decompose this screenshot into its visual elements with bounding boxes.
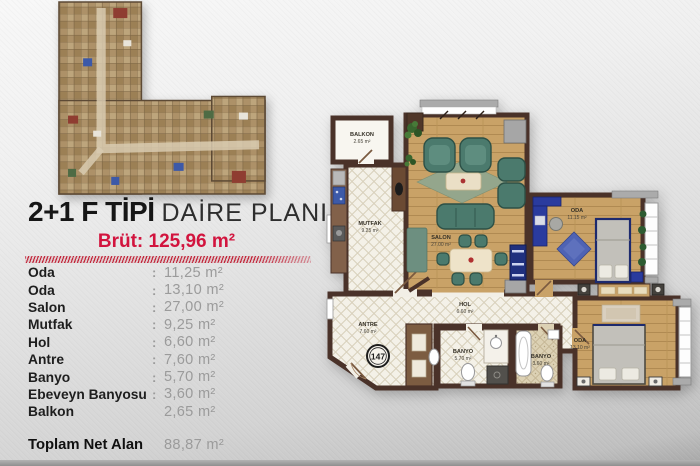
- room-label: Oda: [28, 265, 152, 280]
- room-area-value: 13,10 m²: [164, 282, 318, 298]
- colon: :: [152, 335, 164, 350]
- total-row: Toplam Net Alan 88,87 m²: [28, 437, 318, 453]
- area-row: Antre:7,60 m²: [28, 351, 318, 368]
- room-label: Mutfak: [28, 317, 152, 332]
- area-row: Salon:27,00 m²: [28, 299, 318, 316]
- toilet: [541, 365, 553, 381]
- colon: :: [152, 317, 164, 332]
- colon: :: [152, 265, 164, 280]
- room-area-value: 6,60 m²: [164, 334, 318, 350]
- desk: [533, 197, 561, 206]
- stove: [333, 187, 345, 204]
- room-area-value: 2,65 m²: [164, 404, 318, 420]
- area-row: Mutfak:9,25 m²: [28, 316, 318, 333]
- room-label: Antre: [28, 352, 152, 367]
- colon: :: [152, 387, 164, 402]
- bottom-shadow-strip: [0, 460, 700, 466]
- colon: :: [152, 352, 164, 367]
- salon-label: SALON: [431, 235, 451, 241]
- room-area-value: 5,70 m²: [164, 369, 318, 385]
- room-label: Banyo: [28, 370, 152, 385]
- balkon-area: 2.65 m²: [354, 139, 371, 145]
- room-area-value: 7,60 m²: [164, 352, 318, 368]
- colon: :: [152, 283, 164, 298]
- nightstand: [631, 272, 643, 282]
- hol-area: 6.60 m²: [457, 309, 474, 315]
- runner-rug: [407, 228, 427, 272]
- page-title: 2+1 F TİPİDAİRE PLANI: [28, 196, 328, 228]
- building-overview-image: [52, 0, 270, 197]
- room-area-value: 9,25 m²: [164, 317, 318, 333]
- room-label: Oda: [28, 283, 152, 298]
- room-area-value: 11,25 m²: [164, 265, 318, 281]
- area-row: Oda:11,25 m²: [28, 264, 318, 281]
- bay-window-oda-1: [645, 203, 658, 275]
- concrete-column: [504, 120, 526, 143]
- room-label: Salon: [28, 300, 152, 315]
- banyo-area: 5.70 m²: [455, 356, 472, 362]
- room-label: Hol: [28, 335, 152, 350]
- banyo-label: BANYO: [453, 349, 474, 355]
- area-row: Balkon2,65 m²: [28, 403, 318, 420]
- building-l-shape: [59, 2, 265, 194]
- french-balcony-rail: [420, 100, 498, 107]
- sofa: [498, 183, 525, 208]
- oda-2-area: 13.10 m²: [570, 345, 590, 351]
- balkon-label: BALKON: [350, 132, 374, 138]
- dresser-unit: [578, 284, 664, 297]
- area-row: Banyo:5,70 m²: [28, 368, 318, 385]
- oda-1-area: 11.15 m²: [567, 215, 587, 221]
- total-label: Toplam Net Alan: [28, 437, 164, 453]
- area-row: Oda:13,10 m²: [28, 281, 318, 298]
- washbasin: [548, 330, 559, 339]
- antre-label: ANTRE: [358, 322, 378, 328]
- room-area-value: 3,60 m²: [164, 386, 318, 402]
- red-hatch-divider: [25, 256, 311, 263]
- unit-number: 147: [371, 352, 385, 362]
- room-area-value: 27,00 m²: [164, 299, 318, 315]
- plan-type-title: 2+1 F TİPİ: [28, 196, 155, 227]
- area-row: Hol:6,60 m²: [28, 334, 318, 351]
- room-label: Balkon: [28, 404, 152, 419]
- plan-title-suffix: DAİRE PLANI: [162, 199, 329, 227]
- room-label: Ebeveyn Banyosu: [28, 387, 152, 402]
- oda-2-label: ODA: [574, 338, 586, 344]
- bay-window-oda-2: [679, 307, 691, 377]
- sofa: [498, 158, 525, 181]
- ebeveyn-banyo-area: 3.60 m²: [533, 361, 550, 367]
- colon: :: [152, 300, 164, 315]
- area-row: Ebeveyn Banyosu:3,60 m²: [28, 386, 318, 403]
- ebeveyn-banyo-label: BANYO: [531, 354, 552, 360]
- shower: [487, 366, 508, 384]
- fridge: [333, 171, 345, 185]
- washbasin: [429, 349, 439, 365]
- gross-area-text: Brüt: 125,96 m²: [0, 231, 333, 253]
- oda-1-label: ODA: [571, 208, 583, 214]
- floor-plan: 147 BALKON 2.65 m² MUTFAK 9.25 m² SAL: [325, 85, 700, 466]
- area-table: Oda:11,25 m² Oda:13,10 m² Salon:27,00 m²…: [28, 264, 318, 421]
- toilet: [462, 364, 475, 381]
- colon: :: [152, 370, 164, 385]
- desk-chair: [550, 218, 563, 231]
- mutfak-label: MUTFAK: [358, 221, 381, 227]
- hol-label: HOL: [459, 302, 471, 308]
- mutfak-area: 9.25 m²: [362, 228, 379, 234]
- antre-area: 7.60 m²: [360, 329, 377, 335]
- flyer-canvas: 2+1 F TİPİDAİRE PLANI Brüt: 125,96 m² Od…: [0, 0, 700, 466]
- total-value: 88,87 m²: [164, 437, 318, 453]
- salon-area: 27.00 m²: [431, 242, 451, 248]
- three-seat-sofa: [437, 204, 494, 229]
